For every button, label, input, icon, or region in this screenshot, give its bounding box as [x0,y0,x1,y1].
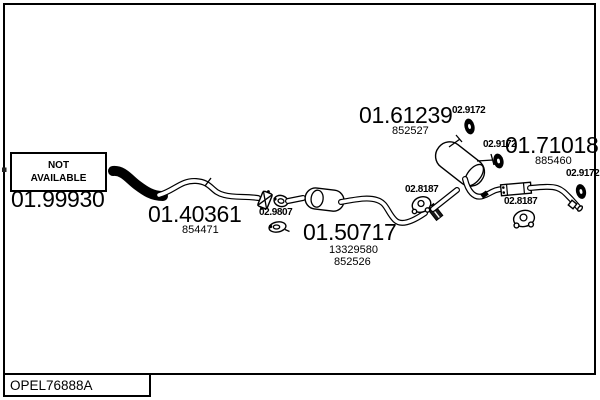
part-number-front-section: 01.99930 [11,188,105,211]
tail-pipe [530,187,583,212]
hardware-label-hanger-mid: 02.8187 [405,185,438,195]
hardware-label-hanger-rear: 02.8187 [504,197,537,207]
center-silencer [304,187,345,213]
exhaust-diagram-page: NOT AVAILABLE 01.99930 01.40361 854471 0… [0,0,600,400]
hardware-label-gasket: 02.9807 [259,208,292,218]
hardware-label-mount-tail: 02.9172 [566,169,599,179]
part-number-center-silencer: 01.50717 [303,221,397,244]
hardware-label-mount-top: 02.9172 [452,106,485,116]
rubber-mount-icon-tail [575,183,588,200]
part-number-front-pipe: 01.40361 [148,203,242,226]
part-ref-tail-pipe: 885460 [535,156,572,167]
front-pipe [159,178,258,198]
not-available-line2: AVAILABLE [31,172,87,185]
part-ref2-center-silencer: 852526 [334,257,371,268]
catalog-code-box: OPEL76888A [3,373,151,397]
gasket-icon [268,221,289,234]
part-ref1-center-silencer: 13329580 [329,245,378,256]
not-available-line1: NOT [48,159,69,172]
catalog-code: OPEL76888A [10,378,93,393]
rubber-hanger-icon-mid [410,194,433,215]
part-ref-front-pipe: 854471 [182,225,219,236]
part-number-rear-muffler: 01.61239 [359,104,453,127]
part-number-tail-pipe: 01.71018 [505,134,599,157]
part-ref-rear-muffler: 852527 [392,126,429,137]
rubber-hanger-icon-rear [512,208,536,228]
rubber-mount-icon-mid [492,153,505,170]
rubber-mount-icon-top [463,118,476,136]
coupling-sleeve-icon [501,182,532,196]
flex-pipe-icon [113,171,163,196]
hardware-label-mount-mid: 02.9172 [483,140,516,150]
center-pipe [288,198,303,201]
